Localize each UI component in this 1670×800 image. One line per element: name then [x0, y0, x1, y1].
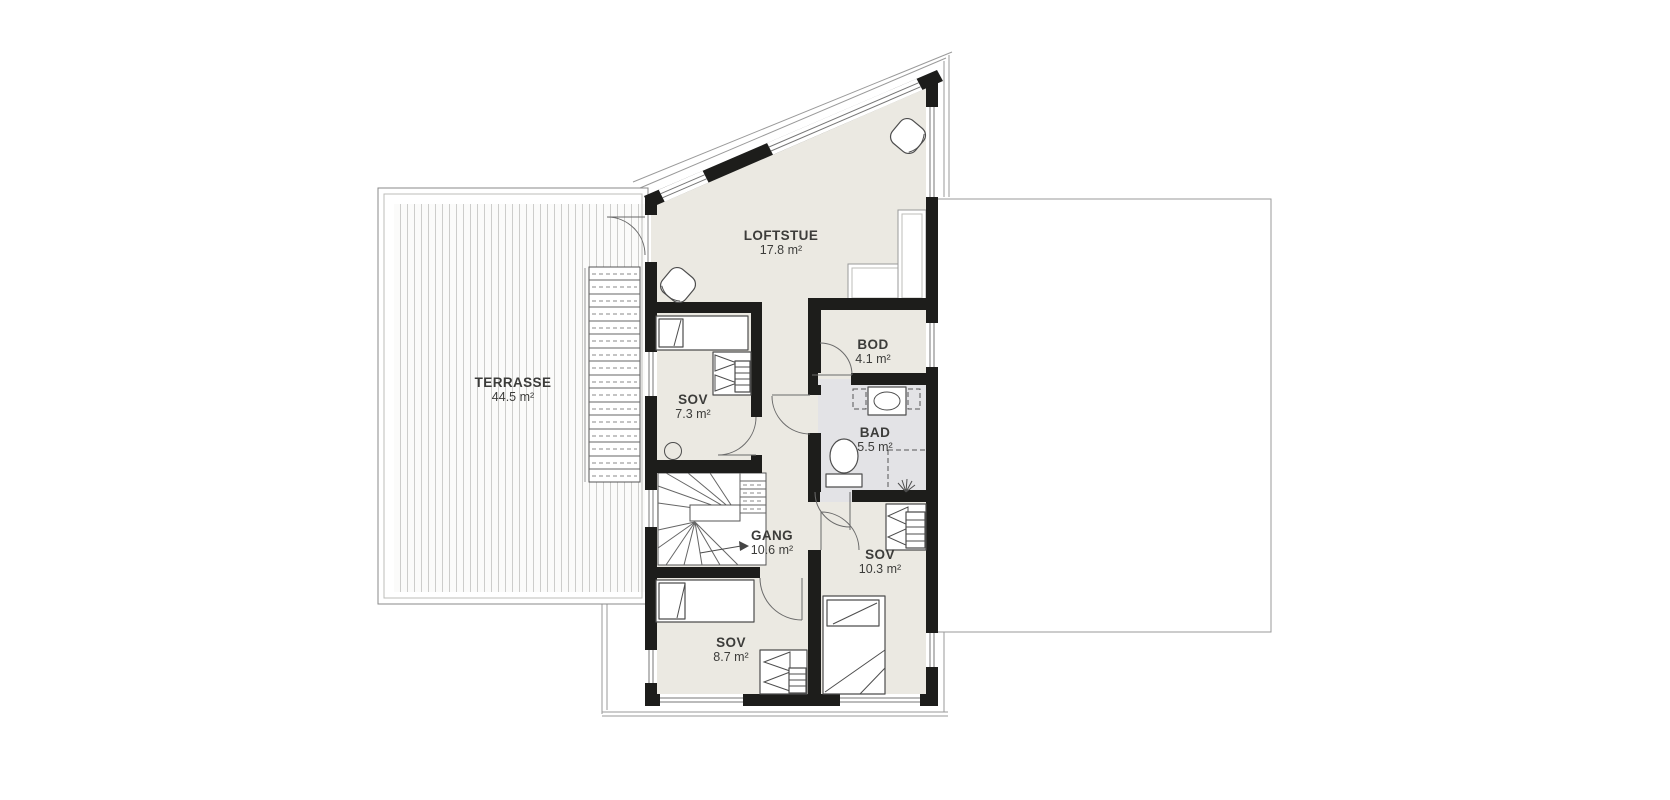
door-swing-icon [607, 217, 645, 255]
floor-plan-drawing [0, 0, 1670, 800]
lower-roof-outline [932, 199, 1271, 632]
bed-icon [656, 580, 754, 622]
wardrobe-icon [713, 352, 751, 395]
wardrobe-icon [886, 504, 926, 550]
outdoor-stair-icon [585, 267, 640, 482]
stair-icon [658, 473, 766, 565]
floor-plan-page: LOFTSTUE 17.8 m² TERRASSE 44.5 m² SOV 7.… [0, 0, 1670, 800]
bed-icon [823, 596, 885, 694]
bed-icon [656, 316, 748, 350]
wardrobe-icon [760, 650, 807, 694]
